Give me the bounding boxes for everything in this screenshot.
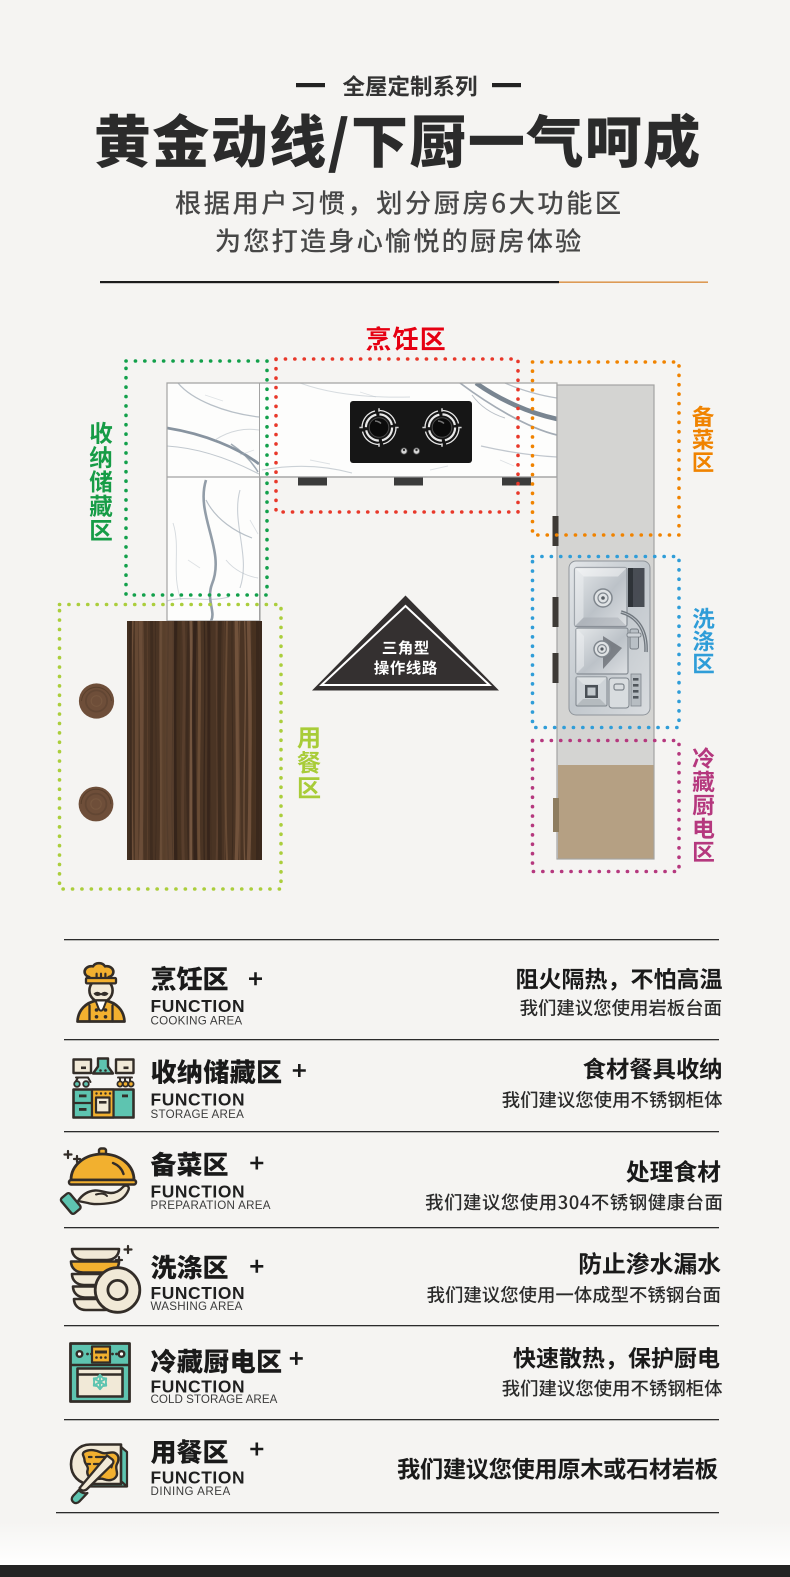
svg-text:COOKING AREA: COOKING AREA	[151, 1014, 243, 1027]
svg-text:DINING AREA: DINING AREA	[151, 1485, 231, 1498]
svg-text:FUNCTION: FUNCTION	[151, 1090, 246, 1110]
svg-text:COLD STORAGE AREA: COLD STORAGE AREA	[151, 1393, 278, 1406]
svg-text:STORAGE AREA: STORAGE AREA	[151, 1108, 245, 1121]
svg-text:FUNCTION: FUNCTION	[151, 996, 246, 1016]
svg-text:PREPARATION AREA: PREPARATION AREA	[151, 1199, 271, 1212]
svg-text:WASHING AREA: WASHING AREA	[151, 1300, 243, 1313]
